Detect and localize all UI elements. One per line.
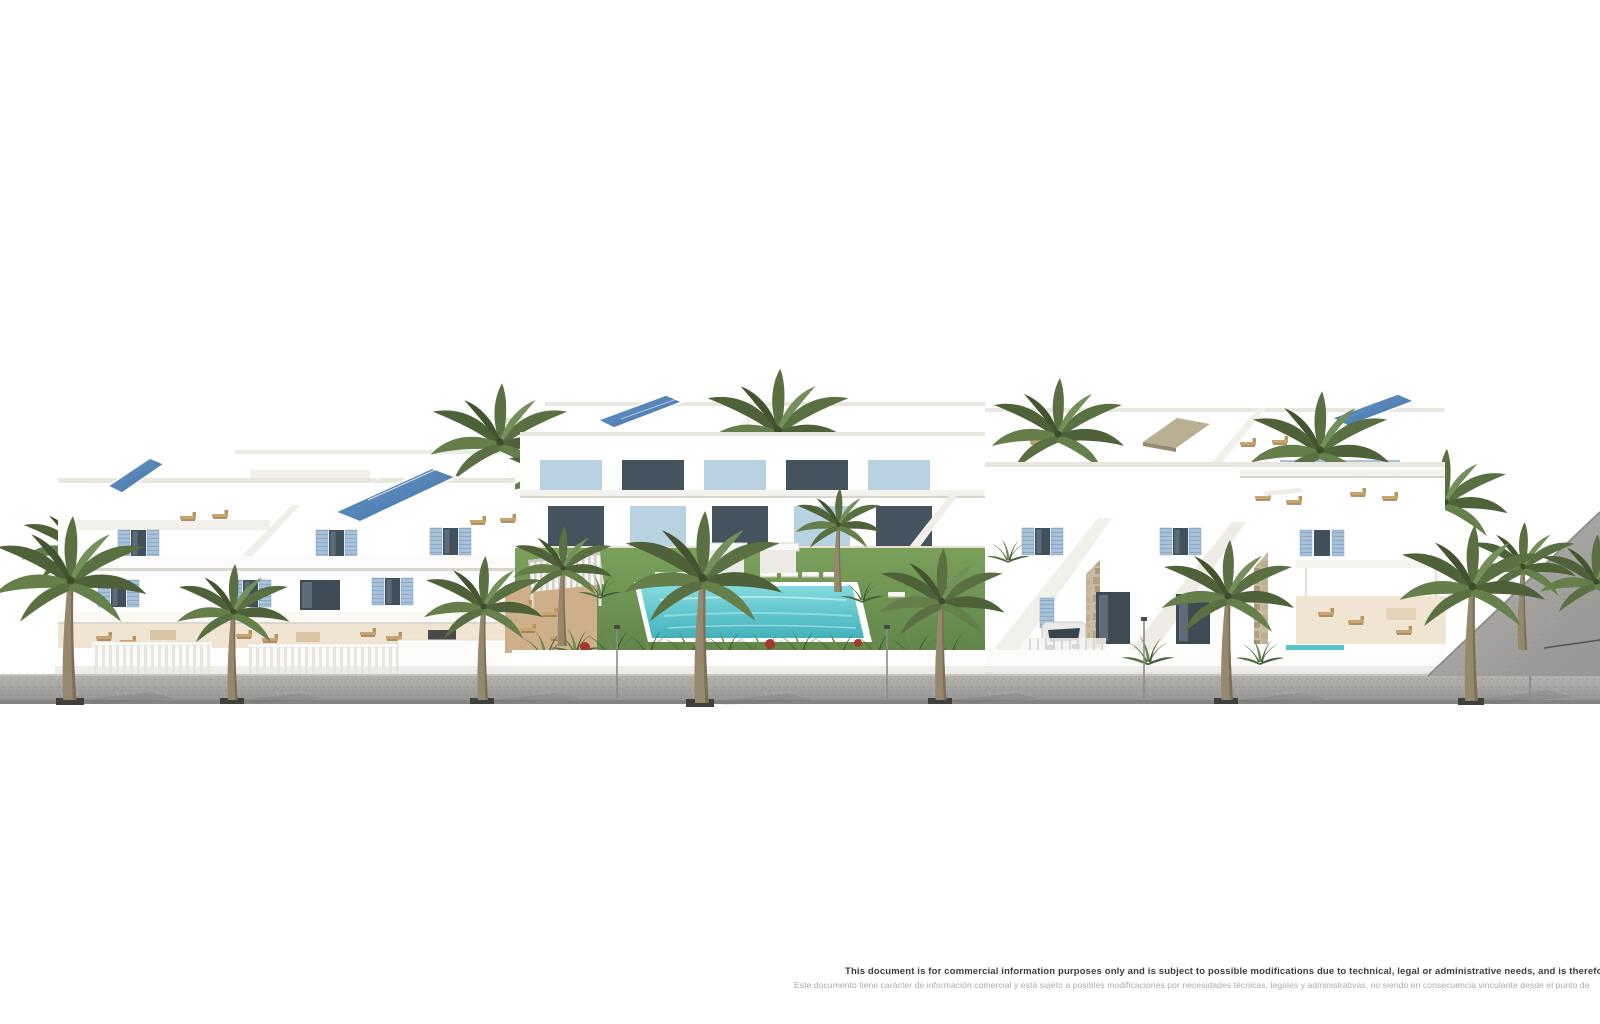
disclaimer-text-en: This document is for commercial informat… bbox=[845, 966, 1600, 977]
balcony-row-upper bbox=[520, 460, 985, 498]
disclaimer-text-es: Este documento tiene carácter de informa… bbox=[794, 980, 1590, 990]
render-canvas: This document is for commercial informat… bbox=[0, 0, 1600, 1024]
left-apartment-block bbox=[58, 456, 516, 676]
center-garden-building bbox=[520, 432, 985, 556]
right-townhouse-block bbox=[985, 462, 1446, 674]
architectural-render-scene bbox=[0, 0, 1600, 1024]
